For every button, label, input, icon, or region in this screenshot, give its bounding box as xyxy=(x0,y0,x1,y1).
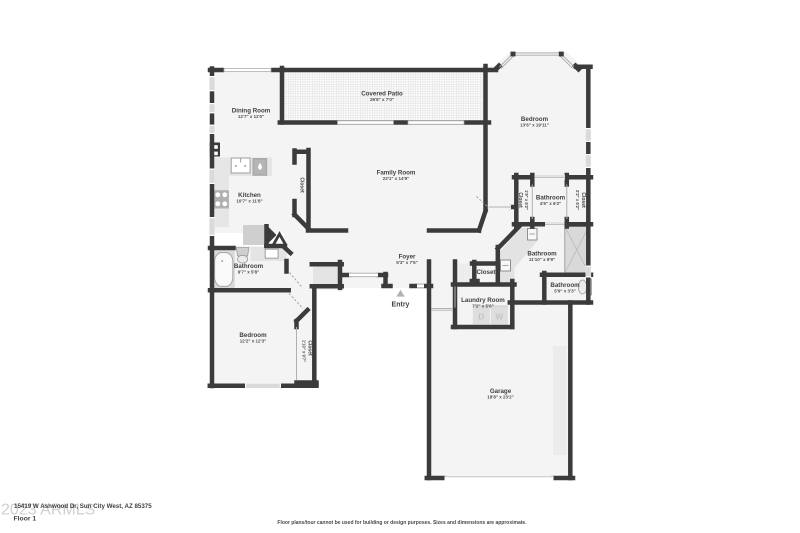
svg-text:1'10" x 9'7": 1'10" x 9'7" xyxy=(302,340,307,362)
svg-text:5'9" x 3'3": 5'9" x 3'3" xyxy=(554,288,575,293)
svg-text:18'8" x 23'2": 18'8" x 23'2" xyxy=(487,394,513,399)
svg-text:Floor plans/tour cannot be use: Floor plans/tour cannot be used for buil… xyxy=(277,520,527,526)
svg-text:12'7" x 11'0": 12'7" x 11'0" xyxy=(238,114,264,119)
svg-text:13'6" x 19'11": 13'6" x 19'11" xyxy=(520,122,549,127)
svg-text:10'7" x 11'8": 10'7" x 11'8" xyxy=(236,198,262,203)
svg-text:W: W xyxy=(495,312,504,322)
svg-text:11'10" x 9'9": 11'10" x 9'9" xyxy=(529,257,555,262)
svg-text:4'9" x 6'2": 4'9" x 6'2" xyxy=(540,201,561,206)
svg-text:Closet: Closet xyxy=(517,192,523,208)
svg-text:7'2" x 5'6": 7'2" x 5'6" xyxy=(472,303,493,308)
svg-text:9'7" x 5'8": 9'7" x 5'8" xyxy=(238,269,259,274)
svg-text:Closet: Closet xyxy=(299,177,305,193)
svg-text:15419 W Ashwood Dr, Sun City W: 15419 W Ashwood Dr, Sun City West, AZ 85… xyxy=(14,503,152,510)
svg-text:1'9" x 6'2": 1'9" x 6'2" xyxy=(524,190,529,210)
svg-text:Closet: Closet xyxy=(580,192,586,208)
svg-text:12'2" x 12'3": 12'2" x 12'3" xyxy=(240,338,266,343)
svg-text:D: D xyxy=(478,312,484,322)
svg-text:Entry: Entry xyxy=(392,302,410,309)
svg-text:2'2" x 6'2": 2'2" x 6'2" xyxy=(575,190,580,210)
svg-text:5'3" x 7'5": 5'3" x 7'5" xyxy=(396,260,417,265)
svg-text:26'8" x 7'0": 26'8" x 7'0" xyxy=(370,97,394,102)
svg-text:Floor 1: Floor 1 xyxy=(14,516,37,523)
svg-text:23'1" x 14'9": 23'1" x 14'9" xyxy=(383,176,409,181)
svg-text:Closet: Closet xyxy=(477,269,496,276)
